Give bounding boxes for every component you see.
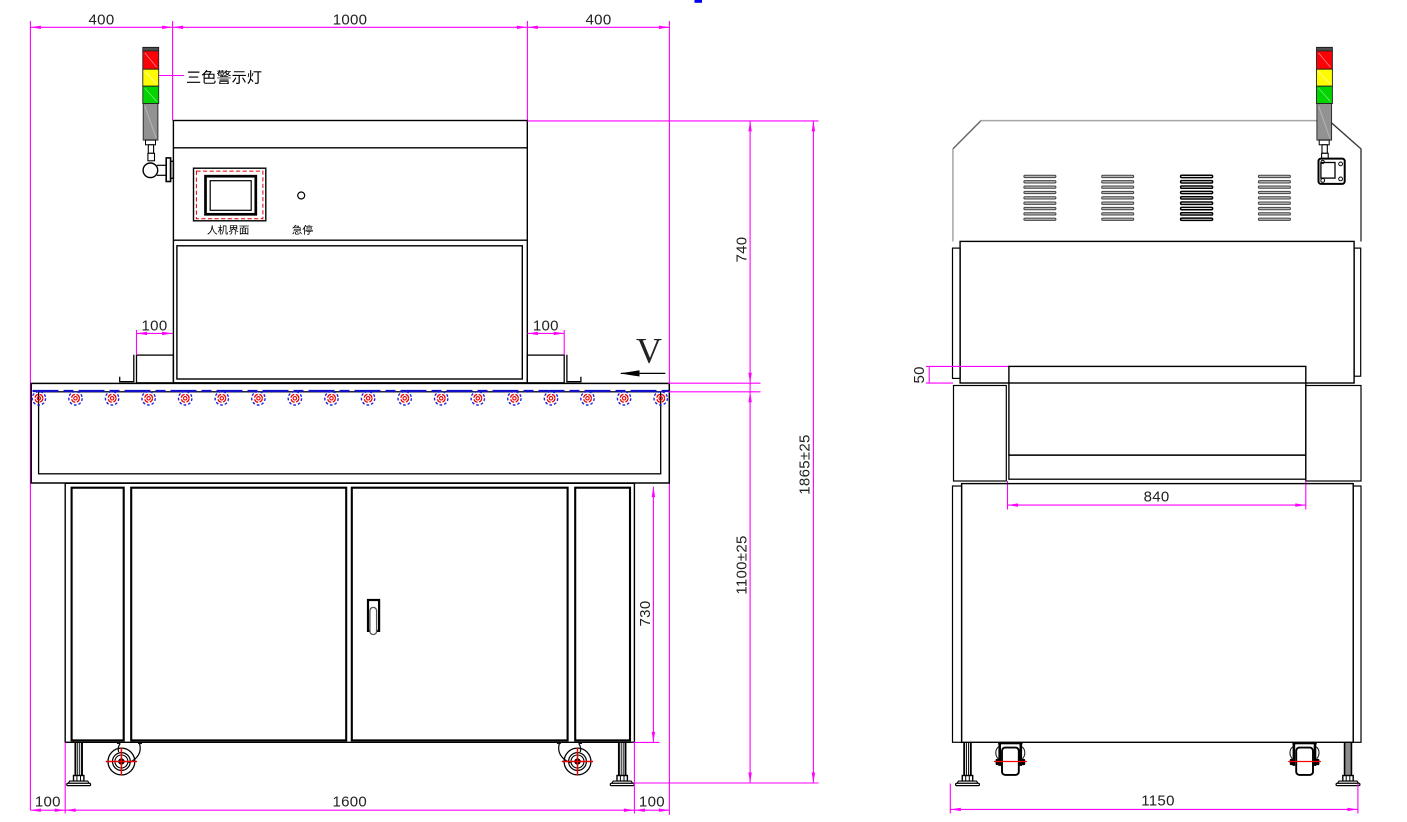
svg-text:1100±25: 1100±25 [733,535,750,594]
svg-text:730: 730 [637,601,654,627]
svg-text:50: 50 [911,366,928,383]
svg-text:840: 840 [1144,489,1170,506]
svg-text:V: V [636,331,662,371]
svg-text:400: 400 [586,12,612,29]
svg-text:740: 740 [733,237,750,263]
svg-text:1865±25: 1865±25 [797,434,814,494]
svg-text:1150: 1150 [1141,793,1174,810]
svg-text:100: 100 [533,317,559,334]
svg-text:100: 100 [35,793,61,810]
svg-text:1000: 1000 [333,12,368,29]
svg-text:100: 100 [142,317,168,334]
svg-text:400: 400 [89,12,115,29]
svg-text:100: 100 [639,793,665,810]
svg-text:1600: 1600 [333,793,368,810]
